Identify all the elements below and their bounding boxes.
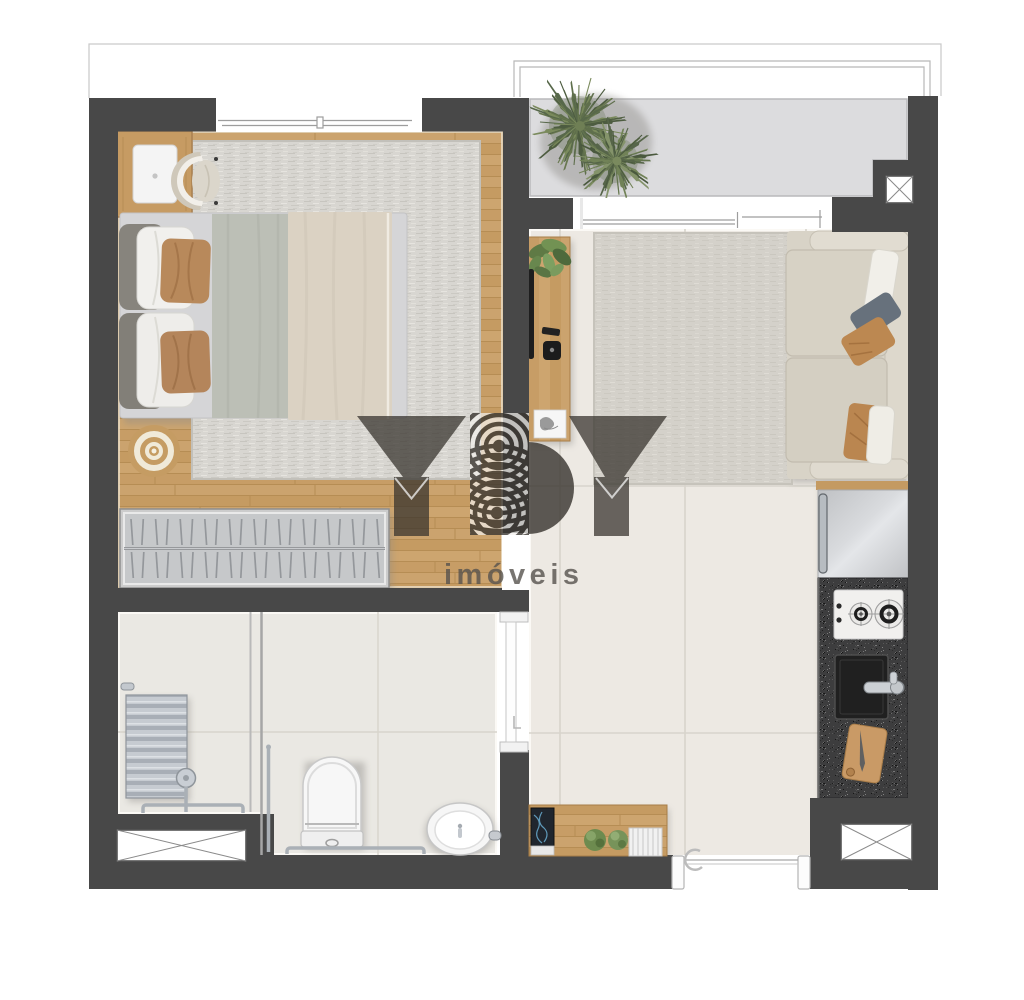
svg-text:imóveis: imóveis xyxy=(444,559,584,591)
